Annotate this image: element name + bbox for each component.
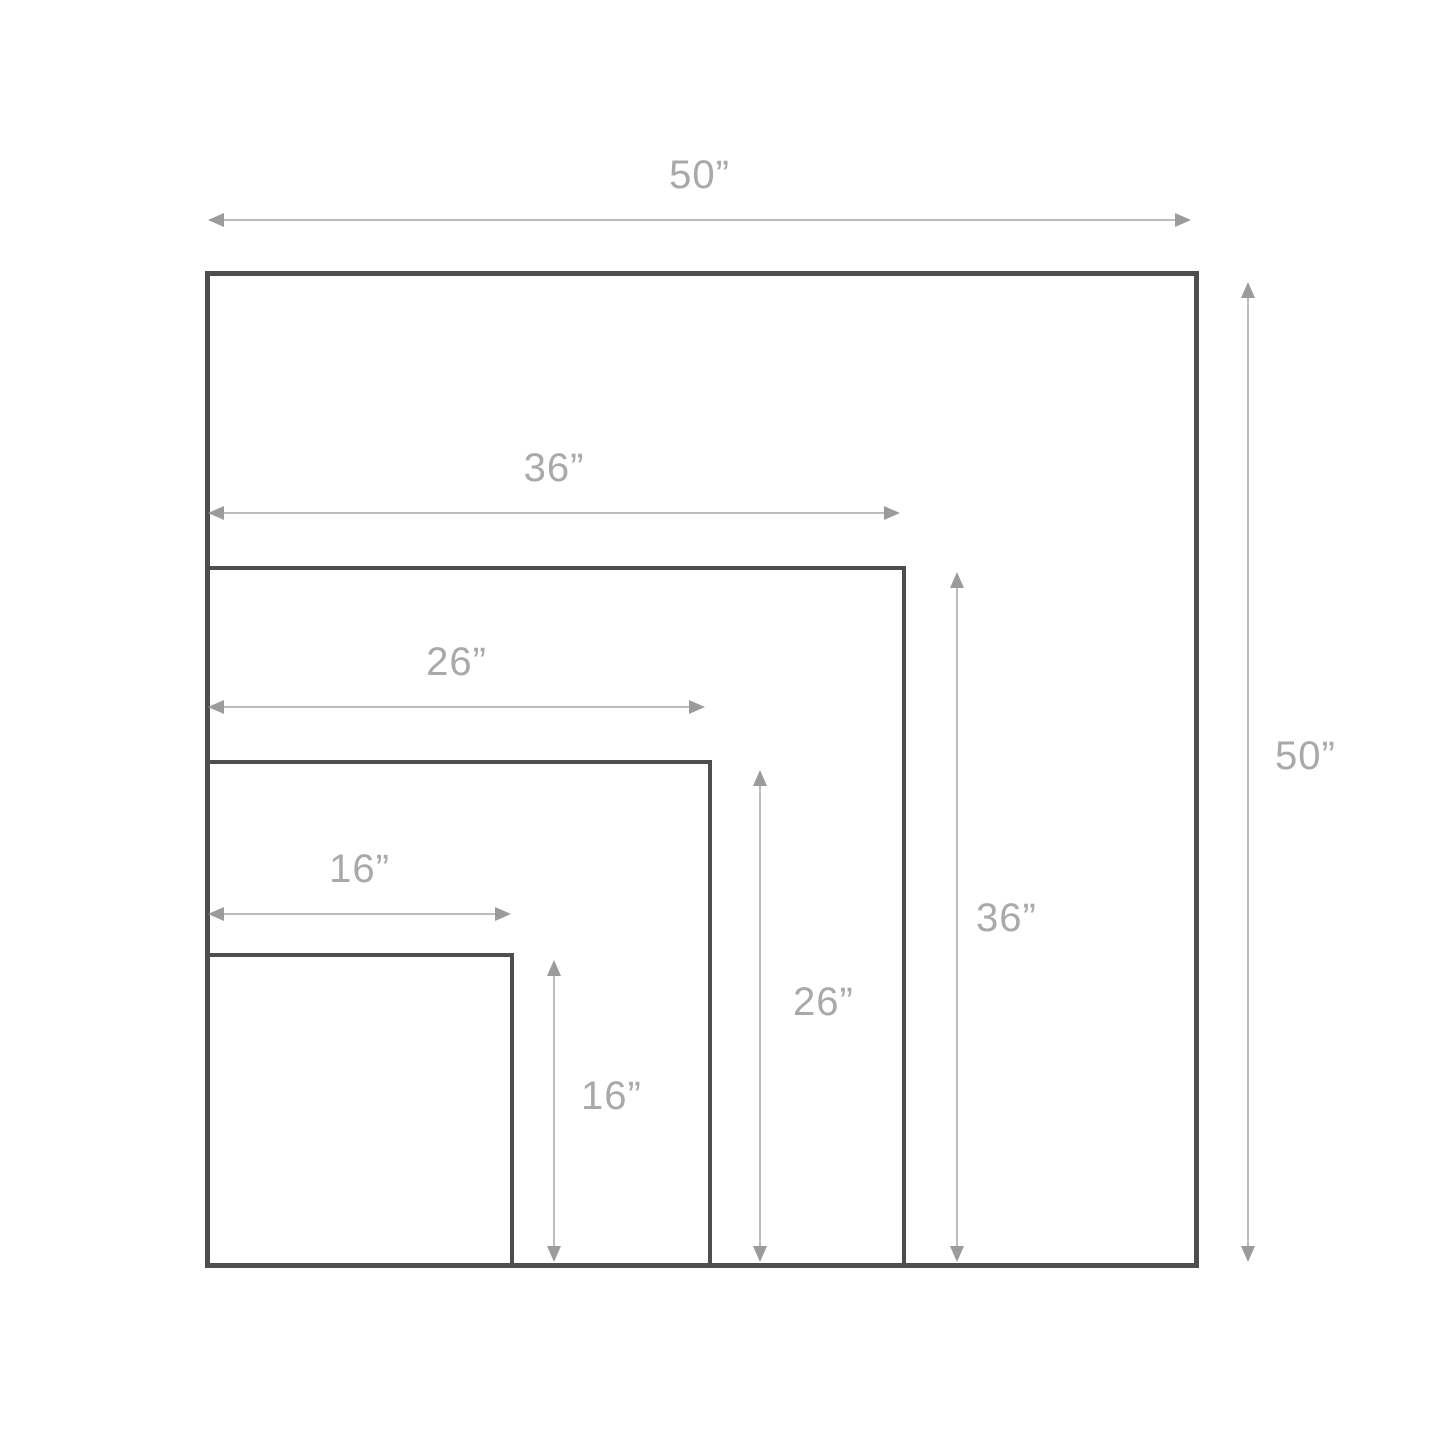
arrowhead-up-icon (950, 572, 964, 588)
height-arrow-36in: 36” (956, 572, 958, 1262)
height-arrow-16in: 16” (553, 960, 555, 1262)
height-label-26in: 26” (793, 980, 854, 1024)
width-label-36in: 36” (208, 446, 900, 490)
arrowhead-right-icon (884, 506, 900, 520)
arrowhead-down-icon (1241, 1246, 1255, 1262)
width-label-50in: 50” (208, 153, 1191, 197)
arrow-line (221, 913, 498, 915)
arrowhead-down-icon (547, 1246, 561, 1262)
arrow-line (221, 706, 692, 708)
height-label-50in: 50” (1275, 734, 1336, 778)
width-label-26in: 26” (208, 640, 705, 684)
width-arrow-50in: 50” (208, 219, 1191, 221)
arrowhead-up-icon (1241, 282, 1255, 298)
height-label-16in: 16” (581, 1074, 642, 1118)
arrowhead-up-icon (547, 960, 561, 976)
arrowhead-left-icon (208, 700, 224, 714)
arrow-line (553, 973, 555, 1249)
dimension-diagram: 50” 36” 26” 16” 50” 36” 26” (0, 0, 1445, 1445)
height-arrow-50in: 50” (1247, 282, 1249, 1262)
arrowhead-left-icon (208, 907, 224, 921)
arrow-line (759, 783, 761, 1249)
width-arrow-16in: 16” (208, 913, 511, 915)
width-arrow-26in: 26” (208, 706, 705, 708)
arrowhead-left-icon (208, 213, 224, 227)
height-arrow-26in: 26” (759, 770, 761, 1262)
arrowhead-right-icon (1175, 213, 1191, 227)
width-label-16in: 16” (208, 847, 511, 891)
arrowhead-down-icon (753, 1246, 767, 1262)
arrow-line (221, 219, 1178, 221)
arrowhead-left-icon (208, 506, 224, 520)
arrow-line (956, 585, 958, 1249)
width-arrow-36in: 36” (208, 512, 900, 514)
height-label-36in: 36” (976, 896, 1037, 940)
arrow-line (221, 512, 887, 514)
arrowhead-right-icon (495, 907, 511, 921)
arrowhead-up-icon (753, 770, 767, 786)
square-16in (205, 953, 514, 1268)
arrow-line (1247, 295, 1249, 1249)
arrowhead-right-icon (689, 700, 705, 714)
arrowhead-down-icon (950, 1246, 964, 1262)
